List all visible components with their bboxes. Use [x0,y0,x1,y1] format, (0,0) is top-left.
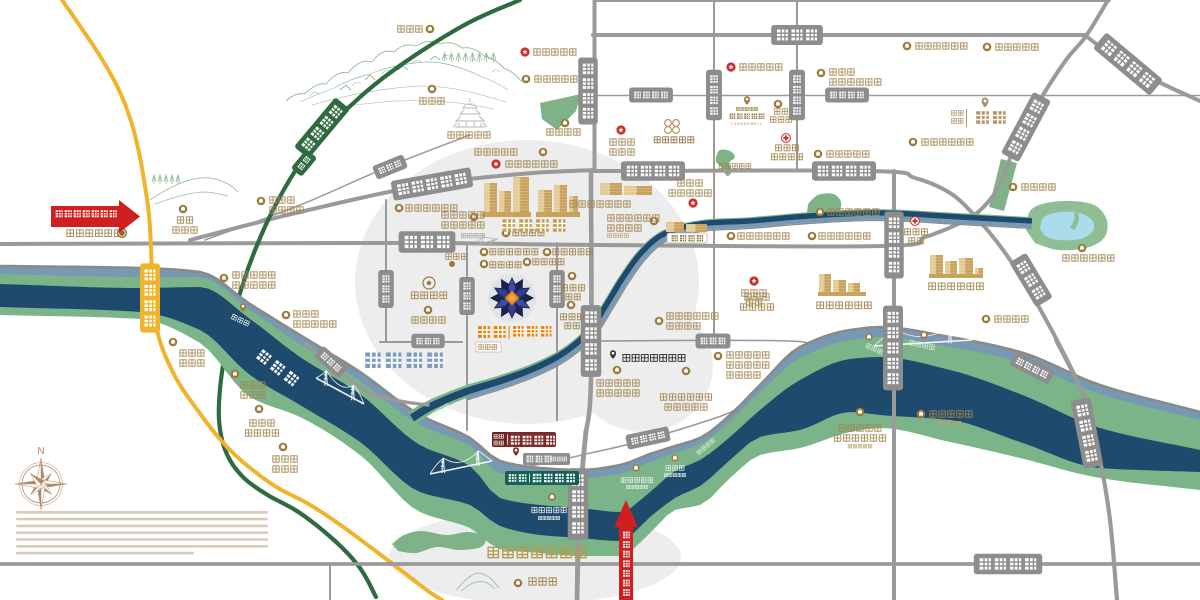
svg-text:N: N [37,446,44,457]
svg-text:LONGDEWELL: LONGDEWELL [731,122,763,126]
